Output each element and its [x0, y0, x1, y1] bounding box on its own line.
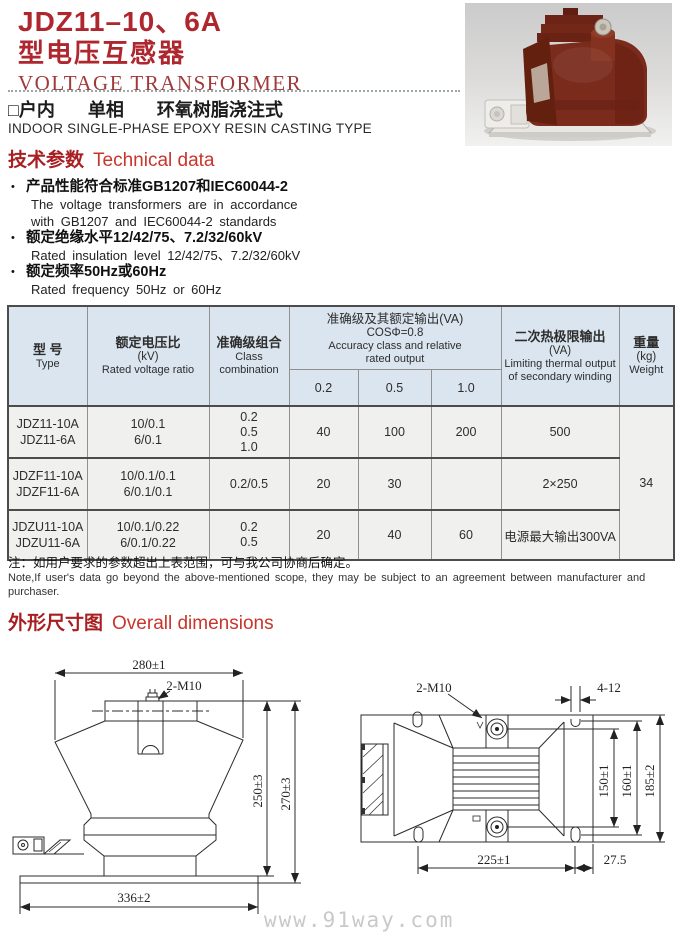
- cell-output-05: 40: [358, 510, 431, 560]
- cell-class: 0.2 0.5: [209, 510, 289, 560]
- watermark: www.91way.com: [264, 908, 454, 932]
- cell-output-10: 200: [431, 406, 501, 458]
- cell-output-02: 40: [289, 406, 358, 458]
- col-header-type: 型 号 Type: [8, 306, 87, 406]
- product-model: JDZ11–10、6A: [18, 6, 302, 38]
- front-view-drawing: 280±1 2-M10 250±3 270±3 336±2: [8, 654, 342, 936]
- tech-bullet-standards: 产品性能符合标准GB1207和IEC60044-2 The voltage tr…: [10, 179, 470, 230]
- dim-v2: 160±1: [619, 764, 634, 797]
- feature-single-phase: 单相: [88, 100, 124, 120]
- dim-v1: 150±1: [596, 764, 611, 797]
- accuracy-class-0.5: 0.5: [358, 370, 431, 407]
- feature-indoor: □户内: [8, 100, 55, 120]
- dims-heading-cn: 外形尺寸图: [8, 613, 103, 634]
- cell-type: JDZU11-10A JDZU11-6A: [8, 510, 87, 560]
- dim-b2: 27.5: [604, 852, 627, 867]
- cell-output-10: 60: [431, 510, 501, 560]
- accuracy-class-1.0: 1.0: [431, 370, 501, 407]
- technical-spec-table: 型 号 Type 额定电压比 (kV) Rated voltage ratio …: [7, 305, 675, 561]
- cell-ratio: 10/0.1 6/0.1: [87, 406, 209, 458]
- table-note: 注：如用户要求的参数超出上表范围，可与我公司协商后确定。 Note,If use…: [8, 555, 676, 599]
- col-header-ratio: 额定电压比 (kV) Rated voltage ratio: [87, 306, 209, 406]
- datasheet-page: JDZ11–10、6A 型电压互感器 VOLTAGE TRANSFORMER: [0, 0, 680, 942]
- dim-height-inner: 250±3: [250, 774, 265, 807]
- cell-class: 0.2/0.5: [209, 458, 289, 510]
- cell-thermal: 电源最大输出300VA: [501, 510, 619, 560]
- cell-type: JDZ11-10A JDZ11-6A: [8, 406, 87, 458]
- note-en: Note,If user's data go beyond the above-…: [8, 571, 676, 599]
- dim-b1: 225±1: [477, 852, 510, 867]
- cell-class: 0.2 0.5 1.0: [209, 406, 289, 458]
- feature-line-en: INDOOR SINGLE-PHASE EPOXY RESIN CASTING …: [8, 121, 372, 136]
- title-block: JDZ11–10、6A 型电压互感器 VOLTAGE TRANSFORMER: [18, 6, 302, 95]
- cell-ratio: 10/0.1/0.22 6/0.1/0.22: [87, 510, 209, 560]
- col-header-weight: 重量 (kg) Weight: [619, 306, 674, 406]
- cell-output-02: 20: [289, 458, 358, 510]
- tech-bullet-frequency: 额定频率50Hz或60Hz Rated frequency 50Hz or 60…: [10, 264, 470, 298]
- table-row-jdzf11: JDZF11-10A JDZF11-6A 10/0.1/0.1 6/0.1/0.…: [8, 458, 674, 510]
- dimensions-heading: 外形尺寸图Overall dimensions: [8, 612, 274, 636]
- cell-weight: 34: [619, 406, 674, 560]
- col-header-thermal: 二次热极限输出 (VA) Limiting thermal output of …: [501, 306, 619, 406]
- dotted-divider: [8, 90, 460, 92]
- cell-ratio: 10/0.1/0.1 6/0.1/0.1: [87, 458, 209, 510]
- cell-output-05: 100: [358, 406, 431, 458]
- cell-output-05: 30: [358, 458, 431, 510]
- tech-bullet-insulation: 额定绝缘水平12/42/75、7.2/32/60kV Rated insulat…: [10, 230, 470, 264]
- tech-heading-cn: 技术参数: [8, 150, 84, 171]
- top-view-drawing: 2-M10 4-12 150±1 160±1 185±2 225±1 27.5: [336, 660, 680, 900]
- table-row-jdz11: JDZ11-10A JDZ11-6A 10/0.1 6/0.1 0.2 0.5 …: [8, 406, 674, 458]
- cell-output-10: [431, 458, 501, 510]
- col-header-accuracy-group: 准确级及其额定输出(VA) COSΦ=0.8 Accuracy class an…: [289, 306, 501, 370]
- feature-line-cn: □户内 单相 环氧树脂浇注式: [8, 96, 311, 122]
- tech-heading-en: Technical data: [93, 150, 214, 171]
- slot-label: 4-12: [597, 680, 621, 695]
- product-type-cn: 型电压互感器: [18, 38, 302, 69]
- accuracy-class-0.2: 0.2: [289, 370, 358, 407]
- cell-type: JDZF11-10A JDZF11-6A: [8, 458, 87, 510]
- dim-width-bottom: 336±2: [117, 890, 150, 905]
- dim-width-top: 280±1: [132, 657, 165, 672]
- bolt-label-top: 2-M10: [416, 680, 451, 695]
- dim-height-outer: 270±3: [278, 777, 293, 810]
- bolt-label-front: 2-M10: [166, 678, 201, 693]
- cell-thermal: 2×250: [501, 458, 619, 510]
- col-header-class-combination: 准确级组合 Class combination: [209, 306, 289, 406]
- table-row-jdzu11: JDZU11-10A JDZU11-6A 10/0.1/0.22 6/0.1/0…: [8, 510, 674, 560]
- dim-v3: 185±2: [642, 764, 657, 797]
- cell-thermal: 500: [501, 406, 619, 458]
- dims-heading-en: Overall dimensions: [112, 613, 274, 634]
- transformer-photo-illustration: [465, 3, 672, 146]
- note-cn: 注：如用户要求的参数超出上表范围，可与我公司协商后确定。: [8, 555, 676, 571]
- tech-data-heading: 技术参数Technical data: [8, 149, 214, 173]
- cell-output-02: 20: [289, 510, 358, 560]
- feature-epoxy: 环氧树脂浇注式: [157, 100, 283, 120]
- product-photo: [465, 3, 672, 146]
- tech-bullet-list: 产品性能符合标准GB1207和IEC60044-2 The voltage tr…: [10, 179, 470, 298]
